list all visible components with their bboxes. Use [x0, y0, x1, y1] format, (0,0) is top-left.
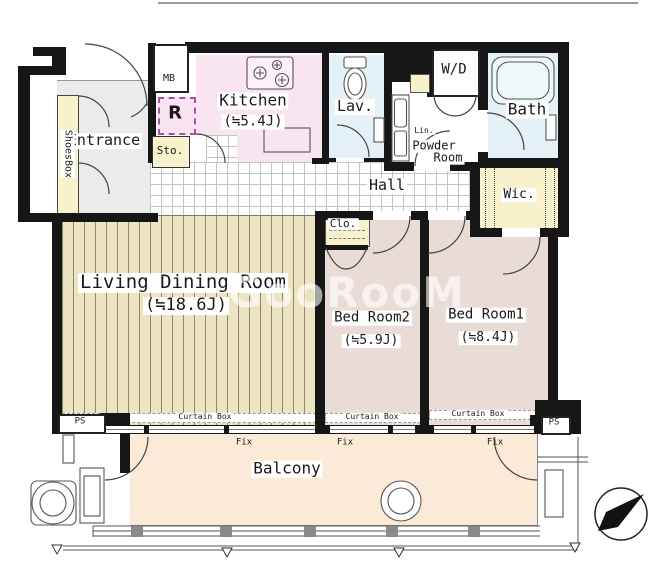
entrance-label: Entrance — [66, 133, 142, 149]
linen-label: Lin. — [412, 127, 435, 135]
curtain-box-label: Curtain Box — [177, 413, 234, 421]
fix-window-label: Fix — [234, 438, 254, 447]
pipe-space-label: PS — [73, 417, 88, 426]
bath-label: Bath — [506, 102, 549, 119]
balcony-label: Balcony — [251, 461, 322, 478]
boundary-arrow — [222, 548, 232, 557]
lavatory-label: Lav. — [335, 99, 375, 115]
wall — [384, 51, 392, 171]
bedroom1-area-label: (≒8.4J) — [459, 331, 518, 345]
washer-door-arc — [434, 95, 455, 116]
washer-dryer-label: W/D — [439, 63, 468, 78]
exterior-unit — [63, 435, 74, 463]
closet-shelf-line — [329, 238, 365, 239]
window-glass-line — [103, 429, 315, 430]
window-glass-line — [434, 429, 534, 430]
linen-box — [410, 74, 430, 93]
window-mullion — [224, 425, 229, 434]
shoes-box-label: ShoesBox — [60, 130, 75, 178]
kitchen-service-floor — [206, 135, 237, 163]
wall — [18, 213, 158, 222]
washer-door-arc — [455, 95, 476, 116]
wall — [185, 42, 569, 53]
wic-shelf-line — [485, 168, 486, 228]
wall — [478, 158, 568, 168]
living-dining-area-label: (≒18.6J) — [143, 297, 229, 315]
fix-window-label: Fix — [485, 438, 505, 447]
boundary-arrow — [394, 548, 404, 557]
curtain-box-label: Curtain Box — [450, 410, 507, 418]
wall — [52, 213, 62, 434]
refrigerator-label: R — [166, 105, 184, 124]
meter-box-label: MB — [161, 74, 177, 85]
door-opening — [373, 211, 411, 220]
meter-box — [153, 44, 189, 93]
boundary-arrow — [52, 545, 62, 554]
fix-window-label: Fix — [335, 438, 355, 447]
storage-label: Sto. — [155, 145, 186, 157]
kitchen-label: Kitchen — [217, 93, 288, 110]
watermark: GooRooM — [228, 268, 466, 317]
bedroom2-area-label: (≒5.9J) — [342, 334, 401, 348]
wall — [558, 42, 569, 237]
powder-room-label-line2: Room — [432, 152, 465, 165]
curtain-box-label: Curtain Box — [344, 413, 401, 421]
wall — [322, 51, 329, 162]
drain-pipe-icon — [32, 482, 74, 524]
door-opening — [336, 158, 364, 162]
door-opening — [478, 110, 488, 152]
pipe-space-label: PS — [547, 418, 562, 427]
window-mullion — [144, 425, 149, 434]
service-hatch — [31, 481, 76, 525]
washbasin-icon — [395, 99, 407, 127]
hall-label: Hall — [367, 178, 407, 194]
wall — [470, 162, 480, 237]
door-opening — [428, 211, 466, 220]
exterior-door — [80, 468, 104, 523]
wall — [420, 213, 429, 434]
washbasin-cabinet — [395, 131, 407, 156]
window-glass-line — [330, 429, 415, 430]
wic-label: Wic. — [501, 188, 536, 202]
floor-plan: Entrance ShoesBox MB R Sto. Kitchen (≒5.… — [0, 0, 652, 585]
outer-boundary-line — [158, 2, 638, 4]
wall — [312, 158, 329, 164]
wall — [315, 213, 325, 434]
door-opening — [502, 228, 540, 237]
closet-label: Clo. — [328, 218, 359, 230]
wall — [325, 245, 368, 250]
washbasin-counter — [392, 95, 409, 161]
wall — [548, 228, 558, 408]
compass-icon — [595, 488, 647, 540]
wic-shelf-line — [494, 168, 495, 228]
window-mullion — [471, 425, 476, 434]
kitchen-floor-lower — [237, 135, 322, 163]
kitchen-area-label: (≒5.4J) — [221, 115, 284, 130]
boundary-arrow — [570, 543, 580, 552]
wic-shelf-line — [545, 168, 546, 228]
living-dining-floor — [62, 215, 315, 426]
exterior-unit — [545, 470, 563, 517]
wall — [18, 66, 30, 222]
window-mullion — [388, 425, 393, 434]
wic-shelf-line — [554, 168, 555, 228]
